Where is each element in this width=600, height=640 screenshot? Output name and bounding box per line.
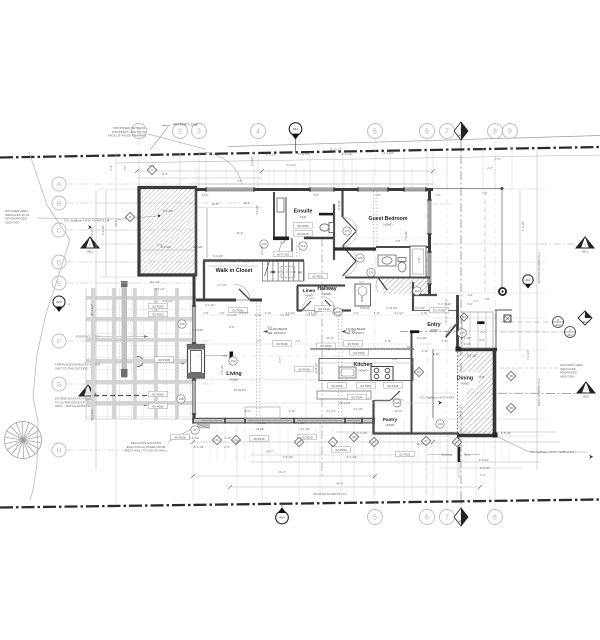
- svg-text:-3/4": -3/4": [467, 293, 472, 297]
- svg-text:2'-1 1/2": 2'-1 1/2": [217, 283, 227, 287]
- svg-text:A5.2: A5.2: [555, 324, 561, 327]
- svg-text:5'-4": 5'-4": [109, 165, 113, 170]
- svg-text:00 P019: 00 P019: [253, 437, 265, 441]
- svg-text:11'-1 1/2": 11'-1 1/2": [382, 151, 394, 155]
- svg-text:6'-8 1/2": 6'-8 1/2": [360, 306, 370, 310]
- svg-text:00 P062: 00 P062: [152, 312, 164, 316]
- svg-text:7'-1 1/2": 7'-1 1/2": [526, 350, 530, 360]
- svg-text:9'-8": 9'-8": [375, 193, 380, 197]
- svg-text:PROPERTY LINE: PROPERTY LINE: [173, 123, 198, 127]
- svg-text:2'-2": 2'-2": [482, 191, 487, 195]
- svg-text:2'-10": 2'-10": [421, 311, 428, 315]
- svg-text:UNIT TO THE OUTSIDE: UNIT TO THE OUTSIDE: [55, 366, 88, 370]
- svg-text:5: 5: [373, 515, 377, 522]
- svg-text:Walk in Closet: Walk in Closet: [216, 268, 253, 274]
- svg-text:5'-1": 5'-1": [359, 280, 364, 284]
- svg-text:A5.0: A5.0: [458, 520, 464, 524]
- svg-text:5: 5: [373, 129, 377, 136]
- svg-text:00 P144: 00 P144: [318, 307, 330, 311]
- svg-text:8'-4 1/2": 8'-4 1/2": [194, 445, 205, 449]
- svg-text:126: 126: [368, 271, 373, 275]
- svg-text:14'-8": 14'-8": [212, 202, 219, 206]
- svg-text:2'-6": 2'-6": [295, 339, 300, 343]
- svg-text:EXISTING ON WIDTH U-2: EXISTING ON WIDTH U-2: [537, 252, 541, 283]
- svg-text:6'-10": 6'-10": [445, 302, 452, 306]
- svg-text:4'-5": 4'-5": [219, 311, 224, 315]
- svg-text:DC P036: DC P036: [433, 309, 446, 313]
- svg-text:2'-10": 2'-10": [224, 436, 231, 440]
- svg-text:4'-1 1/2": 4'-1 1/2": [353, 407, 363, 411]
- svg-text:3'-1 1/2": 3'-1 1/2": [347, 455, 358, 459]
- svg-text:176: 176: [344, 229, 349, 233]
- svg-text:D4: D4: [417, 370, 421, 374]
- svg-text:2'-5 1/2": 2'-5 1/2": [283, 455, 294, 459]
- svg-text:68: 68: [509, 406, 513, 410]
- svg-text:3'-1 1/2": 3'-1 1/2": [300, 427, 310, 431]
- svg-text:00 P046: 00 P046: [298, 367, 310, 371]
- svg-text:HDWD: HDWD: [430, 328, 439, 332]
- svg-text:F: F: [57, 338, 61, 345]
- svg-text:8'-1 1/2": 8'-1 1/2": [150, 280, 160, 284]
- svg-text:00 P201: 00 P201: [312, 274, 324, 278]
- svg-text:00 P245: 00 P245: [387, 384, 399, 388]
- svg-text:2'-4 1/2": 2'-4 1/2": [250, 156, 254, 166]
- svg-text:5'-11": 5'-11": [374, 311, 380, 315]
- svg-text:60: 60: [215, 438, 219, 442]
- svg-text:00 P019: 00 P019: [301, 435, 313, 439]
- svg-text:2'-6": 2'-6": [224, 445, 230, 449]
- svg-text:00 P062: 00 P062: [152, 404, 164, 408]
- svg-text:6'-10": 6'-10": [464, 342, 471, 346]
- svg-text:D: D: [57, 259, 62, 266]
- svg-text:HDWD: HDWD: [230, 378, 239, 382]
- svg-text:4'-10 1/2": 4'-10 1/2": [314, 362, 318, 373]
- svg-text:ADDITION: ADDITION: [5, 220, 19, 224]
- svg-text:00 P348: 00 P348: [158, 358, 170, 362]
- svg-text:HDWD: HDWD: [384, 223, 393, 227]
- svg-text:2'-4 1/2": 2'-4 1/2": [479, 458, 489, 462]
- svg-text:64: 64: [331, 440, 335, 444]
- svg-text:8'-0": 8'-0": [280, 240, 285, 244]
- svg-text:ADDITION: ADDITION: [560, 374, 574, 378]
- svg-text:A5.0: A5.0: [458, 134, 464, 138]
- svg-text:4'-1 1/2": 4'-1 1/2": [285, 311, 295, 315]
- svg-text:EXISTING DA WIDTH V LP: EXISTING DA WIDTH V LP: [313, 492, 346, 496]
- svg-text:2'-8": 2'-8": [417, 257, 421, 262]
- svg-text:WEST WALL TO SOUTH WALL: WEST WALL TO SOUTH WALL: [125, 449, 168, 453]
- svg-text:-3/4": -3/4": [484, 297, 490, 301]
- svg-text:11'-4": 11'-4": [244, 201, 250, 205]
- svg-text:11: 11: [128, 215, 131, 219]
- svg-text:4'-8 1/2": 4'-8 1/2": [501, 431, 512, 435]
- svg-text:09: 09: [193, 428, 197, 432]
- svg-text:6'-10": 6'-10": [422, 349, 429, 353]
- svg-text:11'-11 1/2": 11'-11 1/2": [330, 148, 343, 152]
- svg-text:8'-8": 8'-8": [229, 325, 234, 329]
- svg-text:4'-10": 4'-10": [289, 409, 296, 413]
- svg-text:7'-4 1/2": 7'-4 1/2": [404, 231, 408, 241]
- svg-text:5'-6": 5'-6": [157, 243, 162, 247]
- svg-text:3'-4 1/2": 3'-4 1/2": [286, 163, 296, 167]
- svg-text:3'-0": 3'-0": [479, 375, 484, 379]
- svg-text:9'-2": 9'-2": [479, 338, 485, 342]
- svg-text:6'-10": 6'-10": [349, 329, 356, 333]
- svg-text:12'-10 1/2": 12'-10 1/2": [234, 388, 247, 392]
- svg-text:2'-5 1/2": 2'-5 1/2": [295, 421, 305, 425]
- svg-text:TILE: TILE: [300, 215, 306, 219]
- svg-text:5'-6 1/2": 5'-6 1/2": [337, 200, 341, 210]
- svg-text:5'-2": 5'-2": [467, 302, 472, 306]
- svg-text:00 P046: 00 P046: [347, 342, 359, 346]
- svg-text:67: 67: [424, 439, 428, 443]
- svg-text:Pantry: Pantry: [383, 417, 398, 422]
- svg-text:14'-8": 14'-8": [202, 193, 209, 197]
- svg-text:8'-0": 8'-0": [245, 409, 250, 413]
- svg-text:G: G: [56, 381, 61, 388]
- svg-text:2'-4": 2'-4": [480, 473, 486, 477]
- svg-text:2'-8": 2'-8": [203, 311, 208, 315]
- svg-text:9'-4 1/2": 9'-4 1/2": [213, 254, 223, 258]
- svg-text:B: B: [57, 200, 61, 207]
- svg-text:Ensuite: Ensuite: [294, 209, 313, 215]
- svg-text:24'-4": 24'-4": [278, 470, 285, 474]
- svg-text:HDWD: HDWD: [305, 294, 313, 298]
- svg-text:5'-6 1/2": 5'-6 1/2": [480, 466, 490, 470]
- svg-text:-10 1/2": -10 1/2": [258, 421, 267, 425]
- svg-text:A5.2: A5.2: [567, 334, 573, 337]
- svg-text:00 P244: 00 P244: [351, 395, 363, 399]
- svg-text:A5.1: A5.1: [87, 250, 93, 254]
- svg-text:D1: D1: [462, 315, 466, 319]
- svg-text:00 P063: 00 P063: [360, 384, 372, 388]
- svg-text:00 P044: 00 P044: [320, 344, 332, 348]
- svg-text:A5.1: A5.1: [582, 250, 588, 254]
- svg-text:W/D: W/D: [360, 296, 364, 301]
- svg-text:00 P063: 00 P063: [152, 304, 164, 308]
- svg-text:00 P063: 00 P063: [152, 392, 164, 396]
- svg-text:A5.0: A5.0: [583, 395, 589, 399]
- svg-text:5'-11 1/2": 5'-11 1/2": [386, 306, 397, 310]
- svg-text:3'-6 1/2": 3'-6 1/2": [189, 436, 200, 440]
- svg-text:-10 1/2": -10 1/2": [394, 409, 403, 413]
- svg-text:Guest Bedroom: Guest Bedroom: [369, 216, 408, 222]
- svg-text:46'-5": 46'-5": [336, 482, 343, 486]
- svg-text:9: 9: [508, 129, 512, 136]
- svg-text:68: 68: [509, 374, 513, 378]
- svg-text:00 P026: 00 P026: [174, 435, 186, 439]
- svg-text:4'-1 1/2": 4'-1 1/2": [308, 311, 318, 315]
- svg-text:7'-4 1/2": 7'-4 1/2": [521, 221, 525, 231]
- svg-text:7'-1 5/16": 7'-1 5/16": [192, 328, 203, 332]
- svg-text:110: 110: [415, 289, 420, 293]
- svg-text:6: 6: [425, 129, 429, 136]
- svg-text:2'-2": 2'-2": [473, 299, 478, 303]
- svg-text:2'-2": 2'-2": [237, 179, 242, 183]
- svg-text:4'-10": 4'-10": [265, 311, 272, 315]
- svg-text:2'-2": 2'-2": [487, 166, 493, 170]
- svg-text:Living: Living: [226, 371, 241, 377]
- svg-text:3'-1 1/2": 3'-1 1/2": [205, 303, 215, 307]
- svg-text:FACE OF WOOD FRAMING: FACE OF WOOD FRAMING: [108, 134, 147, 138]
- svg-text:5'-1": 5'-1": [438, 302, 443, 306]
- svg-text:4'-7": 4'-7": [256, 339, 261, 343]
- svg-text:11'-2 1/2": 11'-2 1/2": [298, 152, 310, 156]
- svg-text:A9.2: A9.2: [526, 279, 532, 282]
- svg-text:HDWD: HDWD: [461, 382, 470, 386]
- svg-text:126: 126: [357, 256, 362, 260]
- svg-text:2'-1 1/2": 2'-1 1/2": [260, 245, 264, 255]
- svg-text:00 P064: 00 P064: [331, 384, 343, 388]
- svg-text:65: 65: [352, 435, 356, 439]
- svg-text:9'-2 1/2": 9'-2 1/2": [163, 209, 173, 213]
- svg-text:130: 130: [437, 422, 442, 426]
- svg-text:00 P048: 00 P048: [276, 342, 288, 346]
- svg-text:T.O. Subfloor = 0'-0" = 5479'-: T.O. Subfloor = 0'-0" = 5479'-3 1/4": [64, 219, 110, 223]
- svg-text:02 P150: 02 P150: [335, 448, 347, 452]
- svg-text:H: H: [57, 447, 62, 454]
- svg-text:3'-1 1/2": 3'-1 1/2": [357, 431, 368, 435]
- svg-text:A5.0: A5.0: [583, 321, 589, 324]
- svg-text:138: 138: [178, 397, 183, 401]
- svg-text:2'-8": 2'-8": [395, 239, 400, 243]
- svg-text:UP: UP: [298, 270, 302, 274]
- svg-text:3'-4 1/2": 3'-4 1/2": [415, 306, 425, 310]
- svg-text:2'-3 1/2": 2'-3 1/2": [193, 245, 203, 249]
- svg-text:C: C: [57, 227, 62, 234]
- svg-text:4'-2 1/2": 4'-2 1/2": [101, 225, 105, 235]
- svg-text:3'-2": 3'-2": [123, 165, 127, 170]
- svg-text:12'-0": 12'-0": [407, 345, 414, 349]
- svg-text:6: 6: [425, 515, 429, 522]
- svg-text:9'-8": 9'-8": [162, 172, 168, 176]
- svg-text:HDWD: HDWD: [359, 369, 368, 373]
- svg-text:30'-1 1/2": 30'-1 1/2": [90, 304, 94, 316]
- svg-text:2'-2": 2'-2": [435, 193, 440, 197]
- svg-text:7'-2": 7'-2": [495, 157, 501, 161]
- svg-text:HDWD: HDWD: [323, 292, 332, 296]
- svg-text:7'-2 1/2": 7'-2 1/2": [90, 228, 94, 238]
- svg-text:HDWD: HDWD: [386, 423, 395, 427]
- svg-text:30'-8": 30'-8": [114, 220, 118, 227]
- svg-text:9'-1 1/2": 9'-1 1/2": [467, 354, 477, 358]
- svg-text:2'-6": 2'-6": [392, 357, 397, 361]
- svg-text:6'-3 1/2": 6'-3 1/2": [239, 311, 249, 315]
- svg-text:2: 2: [178, 129, 182, 136]
- svg-text:30'-1 1/2": 30'-1 1/2": [90, 409, 94, 421]
- svg-text:EXIST. DA WIDTH V LF.: EXIST. DA WIDTH V LF.: [537, 378, 541, 406]
- svg-text:1'-8": 1'-8": [331, 311, 336, 315]
- svg-text:6'-10": 6'-10": [385, 339, 392, 343]
- svg-text:4'-7": 4'-7": [278, 357, 282, 362]
- svg-text:8'-0 1/2": 8'-0 1/2": [342, 152, 353, 156]
- svg-text:6'-0": 6'-0": [267, 325, 272, 329]
- svg-text:8: 8: [493, 515, 497, 522]
- svg-text:9'-0 1/2": 9'-0 1/2": [163, 299, 173, 303]
- svg-text:3'-1 1/2": 3'-1 1/2": [353, 421, 363, 425]
- svg-text:6'-3 1/2": 6'-3 1/2": [417, 336, 427, 340]
- svg-text:8'-1 1/2": 8'-1 1/2": [461, 336, 471, 340]
- svg-text:7: 7: [445, 129, 449, 136]
- svg-text:4'-10": 4'-10": [442, 339, 449, 343]
- svg-text:00 P-132: 00 P-132: [277, 252, 290, 256]
- svg-text:3'-1 1/2": 3'-1 1/2": [326, 409, 336, 413]
- svg-text:E: E: [57, 280, 62, 287]
- svg-text:-10 1/2": -10 1/2": [255, 427, 264, 431]
- svg-text:A9.0: A9.0: [56, 300, 62, 304]
- svg-text:00 P075: 00 P075: [297, 232, 309, 236]
- svg-text:26'-1 1/2": 26'-1 1/2": [339, 401, 350, 405]
- svg-text:RE: STRUCT.: RE: STRUCT.: [268, 331, 287, 335]
- svg-text:7'-1 1/2": 7'-1 1/2": [220, 365, 224, 375]
- svg-text:8: 8: [493, 129, 497, 136]
- svg-text:00 P063: 00 P063: [297, 224, 309, 228]
- svg-text:00 P244: 00 P244: [353, 351, 365, 355]
- svg-text:3: 3: [197, 129, 201, 136]
- svg-text:24'-7": 24'-7": [266, 450, 273, 454]
- svg-text:8'-1 1/2": 8'-1 1/2": [155, 287, 165, 291]
- svg-text:3'-0": 3'-0": [353, 311, 358, 315]
- svg-text:Linen: Linen: [303, 288, 315, 293]
- svg-text:2'-2": 2'-2": [480, 330, 486, 334]
- svg-text:A9.0: A9.0: [293, 127, 299, 131]
- svg-text:8'-0 1/2": 8'-0 1/2": [266, 153, 277, 157]
- svg-text:102: 102: [230, 359, 235, 363]
- svg-text:112: 112: [301, 244, 306, 248]
- svg-text:4'-10": 4'-10": [433, 352, 440, 356]
- svg-text:3'-4 1/2": 3'-4 1/2": [394, 311, 404, 315]
- svg-text:11'-4": 11'-4": [237, 231, 244, 235]
- svg-text:Kitchen: Kitchen: [353, 362, 372, 368]
- svg-text:7: 7: [445, 515, 449, 522]
- svg-text:4: 4: [256, 129, 260, 136]
- svg-text:17'-0": 17'-0": [327, 336, 334, 340]
- svg-text:7'-4 1/2": 7'-4 1/2": [255, 205, 259, 215]
- svg-text:02 P021: 02 P021: [399, 452, 411, 456]
- svg-text:A9.0: A9.0: [279, 516, 285, 520]
- svg-text:5'-8": 5'-8": [313, 193, 318, 197]
- svg-text:139: 139: [179, 322, 184, 326]
- svg-text:A: A: [57, 181, 62, 188]
